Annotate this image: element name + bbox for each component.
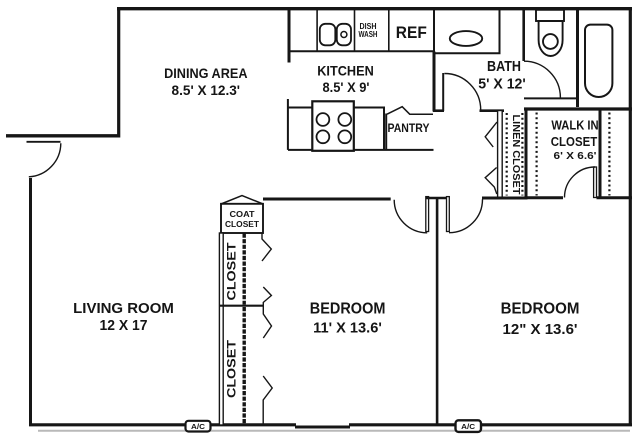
svg-text:CLOSET: CLOSET bbox=[226, 243, 238, 301]
svg-text:11' X 13.6': 11' X 13.6' bbox=[313, 320, 382, 337]
svg-text:PANTRY: PANTRY bbox=[388, 121, 430, 135]
svg-text:12 X 17: 12 X 17 bbox=[100, 318, 148, 334]
svg-text:CLOSET: CLOSET bbox=[226, 340, 238, 398]
svg-text:BATH: BATH bbox=[487, 59, 521, 75]
svg-text:CLOSET: CLOSET bbox=[551, 134, 597, 149]
svg-text:BEDROOM: BEDROOM bbox=[310, 300, 386, 317]
svg-text:LINEN CLOSET: LINEN CLOSET bbox=[510, 115, 522, 196]
svg-text:5' X 12': 5' X 12' bbox=[478, 77, 526, 93]
svg-text:A/C: A/C bbox=[191, 424, 205, 431]
svg-text:REF: REF bbox=[396, 24, 427, 42]
svg-text:KITCHEN: KITCHEN bbox=[317, 63, 374, 78]
svg-text:WALK IN: WALK IN bbox=[551, 118, 598, 133]
svg-text:LIVING ROOM: LIVING ROOM bbox=[73, 301, 174, 317]
svg-text:BEDROOM: BEDROOM bbox=[501, 300, 580, 317]
svg-text:8.5' X 12.3': 8.5' X 12.3' bbox=[172, 82, 241, 98]
svg-text:COAT: COAT bbox=[230, 209, 256, 219]
svg-text:12" X 13.6': 12" X 13.6' bbox=[503, 321, 578, 338]
svg-text:WASH: WASH bbox=[359, 30, 378, 39]
svg-text:A/C: A/C bbox=[461, 424, 475, 431]
svg-text:8.5' X 9': 8.5' X 9' bbox=[323, 80, 370, 95]
svg-text:DINING AREA: DINING AREA bbox=[164, 65, 247, 81]
svg-text:6' X 6.6': 6' X 6.6' bbox=[554, 150, 597, 162]
svg-text:CLOSET: CLOSET bbox=[225, 219, 260, 229]
